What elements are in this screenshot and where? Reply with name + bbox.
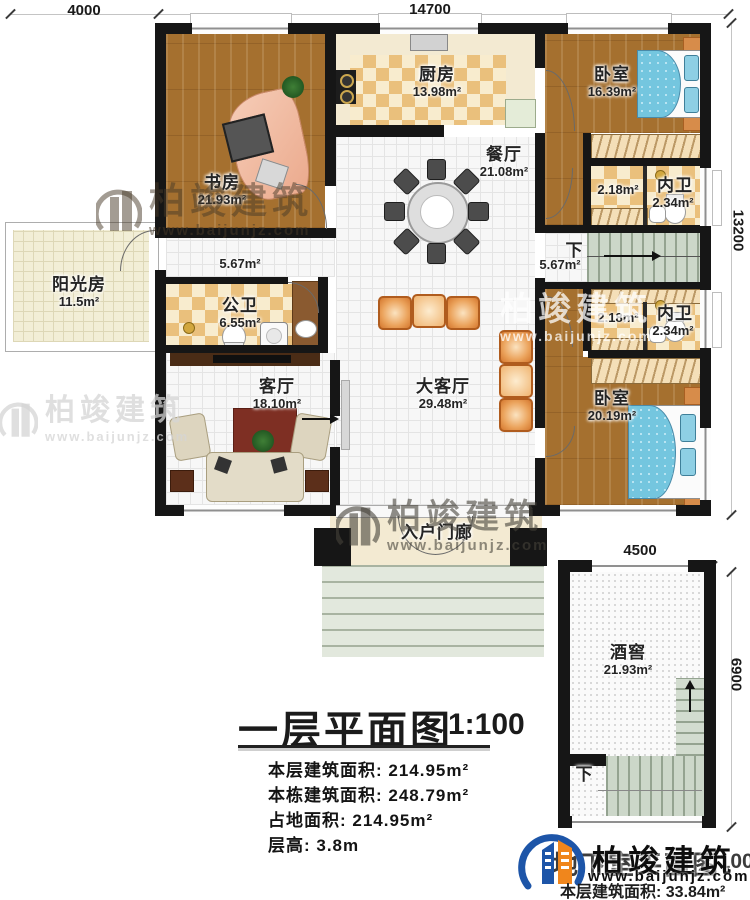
closet-bedroom-bottom xyxy=(591,358,702,384)
dimension-4500: 4500 xyxy=(600,542,680,559)
room-label-living: 客厅 18.10m² xyxy=(253,378,301,411)
stat-storey-height: 层高: 3.8m xyxy=(268,831,359,856)
floor-plan-canvas: 4000 14700 13200 4500 6900 xyxy=(0,0,750,900)
wall-segment xyxy=(643,166,647,225)
burner xyxy=(340,74,354,88)
stair-arrow xyxy=(604,255,654,257)
dimension-line-right xyxy=(731,23,732,515)
wall-segment xyxy=(166,345,328,353)
window xyxy=(568,23,668,34)
room-label-bedroom-bottom: 卧室 20.19m² xyxy=(588,390,636,423)
window xyxy=(560,505,676,516)
stat-footprint-area: 占地面积: 214.95m² xyxy=(268,806,433,831)
plant xyxy=(282,76,304,98)
wall-segment xyxy=(330,447,340,505)
armchair xyxy=(446,296,480,330)
room-label-porch: 入户门廊 xyxy=(401,524,473,542)
washer-door xyxy=(266,328,282,344)
wall-segment xyxy=(545,225,711,233)
room-label-cellar: 酒窖 21.93m² xyxy=(604,644,652,677)
bath-sink xyxy=(295,320,317,338)
armchair xyxy=(168,412,211,462)
room-label-bath-bottom: 内卫 xyxy=(657,305,693,323)
room-label-kitchen: 厨房 13.98m² xyxy=(413,66,461,99)
wall-segment xyxy=(588,350,700,358)
dining-chair xyxy=(468,202,489,221)
armchair xyxy=(499,330,533,364)
cellar-stair-arrow-head xyxy=(685,680,695,689)
dimension-4000: 4000 xyxy=(44,2,124,19)
window xyxy=(700,290,711,348)
wall-segment xyxy=(155,23,166,228)
duvet xyxy=(637,50,681,118)
window xyxy=(700,428,711,500)
dimension-14700: 14700 xyxy=(390,1,470,18)
plan-scale: 1:100 xyxy=(448,708,525,742)
window xyxy=(700,168,711,226)
pillow xyxy=(680,414,696,442)
wall-segment xyxy=(155,270,166,515)
cellar-stair-lower xyxy=(606,756,704,816)
cabinet xyxy=(341,380,350,450)
entry-arrow-head xyxy=(330,414,339,424)
wall-segment xyxy=(325,23,336,186)
window xyxy=(184,505,284,516)
closet-bedroom-top xyxy=(591,134,702,159)
kitchen-sink xyxy=(410,34,448,51)
room-label-great-living: 大客厅 29.48m² xyxy=(416,378,470,411)
closet-area-label: 2.18m² xyxy=(597,182,638,197)
hall-area-label: 5.67m² xyxy=(219,256,260,271)
stair-arrow-head xyxy=(652,251,661,261)
closet-bath-top xyxy=(591,208,648,226)
cellar-down-label: 下 xyxy=(576,760,593,785)
bath-area-label: 2.34m² xyxy=(652,195,693,210)
basement-stat: 本层建筑面积: 33.84m² xyxy=(560,878,725,900)
brand-logo-icon xyxy=(0,396,38,446)
burner xyxy=(340,90,354,104)
room-label-study: 书房 21.93m² xyxy=(198,174,246,207)
stat-building-area: 本栋建筑面积: 248.79m² xyxy=(268,781,469,806)
kitchen-cabinet xyxy=(505,99,536,128)
lamp xyxy=(183,322,195,334)
window xyxy=(572,816,702,828)
wall-segment xyxy=(535,133,545,233)
stair-path-line xyxy=(598,790,702,791)
wall-segment xyxy=(535,278,545,428)
porch-pillar xyxy=(314,528,351,566)
stair-area-label: 5.67m² xyxy=(539,257,580,272)
wall-segment xyxy=(330,360,340,416)
porch-pillar xyxy=(510,528,547,566)
pillow xyxy=(684,87,699,113)
window-sill xyxy=(712,170,722,226)
pillow xyxy=(680,448,696,476)
wall-segment xyxy=(535,23,545,68)
armchair xyxy=(378,296,412,330)
side-table xyxy=(170,470,194,492)
bath-area-label: 2.34m² xyxy=(652,323,693,338)
cellar-stair-arrow xyxy=(689,688,691,712)
wall-segment xyxy=(583,133,591,228)
wall-segment xyxy=(318,277,328,353)
dining-chair xyxy=(427,159,446,180)
wall-segment xyxy=(558,560,570,828)
wall-segment xyxy=(330,125,444,137)
dimension-6900: 6900 xyxy=(728,645,745,705)
wall-segment xyxy=(535,458,545,516)
side-table xyxy=(305,470,329,492)
room-label-bedroom-top: 卧室 16.39m² xyxy=(588,66,636,99)
wall-segment xyxy=(583,289,591,351)
dining-chair xyxy=(427,243,446,264)
wall-segment xyxy=(643,302,647,350)
window xyxy=(380,23,478,34)
room-label-public-bath: 公卫 6.55m² xyxy=(219,297,260,330)
dimension-13200: 13200 xyxy=(730,201,747,261)
closet-area-label: 2.18m² xyxy=(597,310,638,325)
stat-floor-area: 本层建筑面积: 214.95m² xyxy=(268,756,469,781)
side-table xyxy=(412,294,446,328)
wall-segment xyxy=(704,560,716,828)
wall-segment xyxy=(166,277,288,284)
entry-steps xyxy=(322,565,544,657)
wall-segment xyxy=(588,158,700,166)
window-sill xyxy=(712,292,722,348)
pillow xyxy=(684,55,699,81)
side-table xyxy=(499,364,533,398)
plant xyxy=(252,430,274,452)
room-label-sunroom: 阳光房 11.5m² xyxy=(52,276,106,309)
staircase-main xyxy=(587,233,700,282)
wall-segment xyxy=(155,228,336,238)
armchair xyxy=(499,398,533,432)
entry-arrow xyxy=(302,418,332,420)
wall-segment xyxy=(545,282,711,289)
room-label-bath-top: 内卫 xyxy=(657,177,693,195)
dining-table-inner xyxy=(420,195,454,229)
room-label-dining: 餐厅 21.08m² xyxy=(480,146,528,179)
title-underline xyxy=(238,745,490,748)
tv xyxy=(213,355,291,363)
window xyxy=(192,23,288,34)
window xyxy=(592,560,688,572)
dining-chair xyxy=(384,202,405,221)
